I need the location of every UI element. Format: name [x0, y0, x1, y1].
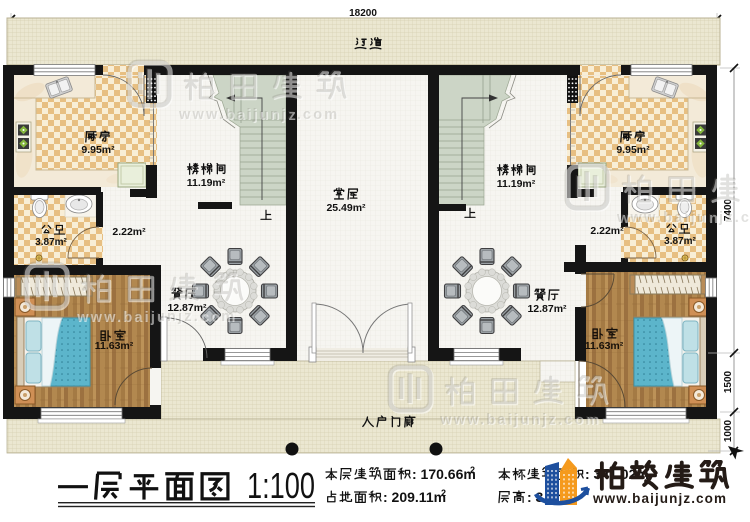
svg-text:11.63m²: 11.63m²: [585, 340, 624, 352]
svg-text:12.87m²: 12.87m²: [527, 303, 567, 315]
svg-text:: 170.66m: : 170.66m: [412, 466, 476, 482]
svg-text:2: 2: [470, 465, 475, 475]
svg-text:3.87m²: 3.87m²: [664, 236, 696, 247]
svg-text:www.baijunjz.com: www.baijunjz.com: [616, 210, 750, 226]
svg-text:1:100: 1:100: [247, 465, 315, 506]
svg-text:11.19m²: 11.19m²: [187, 177, 226, 189]
svg-text:9.95m²: 9.95m²: [81, 144, 115, 156]
svg-text:3.87m²: 3.87m²: [35, 237, 67, 248]
svg-text:2.22m²: 2.22m²: [112, 226, 146, 238]
svg-text:11.63m²: 11.63m²: [95, 340, 134, 352]
svg-text:11.19m²: 11.19m²: [497, 178, 536, 190]
svg-text:: 209.11m: : 209.11m: [383, 489, 446, 505]
svg-text:2: 2: [441, 488, 446, 498]
svg-text:www.baijunjz.com: www.baijunjz.com: [439, 412, 600, 428]
svg-text:1000: 1000: [723, 419, 734, 442]
svg-text:18200: 18200: [349, 8, 377, 19]
svg-text:1500: 1500: [723, 370, 734, 393]
svg-text:www.baijunjz.com: www.baijunjz.com: [178, 107, 339, 123]
svg-text:25.49m²: 25.49m²: [326, 202, 366, 214]
svg-text:9.95m²: 9.95m²: [616, 144, 650, 156]
svg-text:www.baijunjz.com: www.baijunjz.com: [592, 491, 727, 506]
svg-text:www.baijunjz.com: www.baijunjz.com: [75, 309, 236, 325]
